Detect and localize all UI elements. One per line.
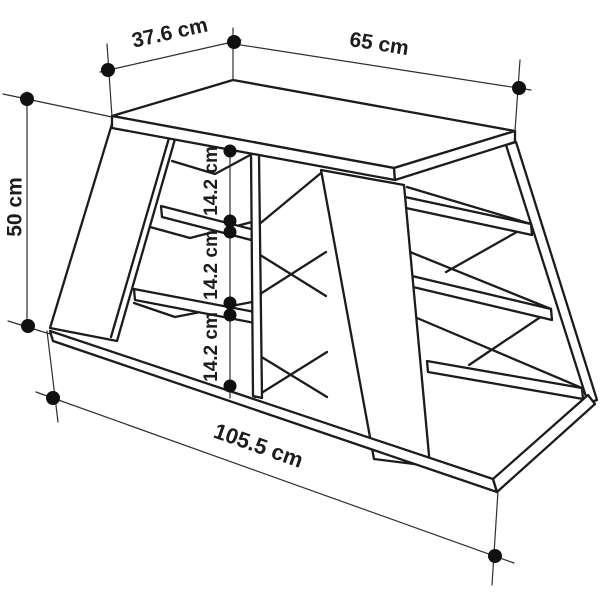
label-bottom-width: 105.5 cm [211,418,307,473]
depth-dimension-line [100,40,241,72]
dimension-diagram: 37.6 cm 65 cm 50 cm 14.2 cm 14.2 cm 14.2… [0,0,600,600]
dimension-endpoint-dot [224,145,237,158]
label-top-depth: 37.6 cm [130,14,210,53]
base-right-face [493,395,595,492]
dimension-endpoint-dot [227,35,241,49]
furniture-drawing-svg: 37.6 cm 65 cm 50 cm 14.2 cm 14.2 cm 14.2… [0,0,600,600]
dimension-endpoint-dot [512,81,526,95]
label-shelf-gap-top: 14.2 cm [201,146,222,216]
center-divider-panel [251,152,262,398]
dimension-endpoint-dot [224,226,237,239]
label-side-height: 50 cm [4,177,27,237]
dimension-endpoint-dot [488,549,502,563]
dimension-endpoint-dot [224,309,237,322]
extension-line [515,60,520,131]
shelf-right-middle [412,276,552,320]
label-shelf-gap-bottom: 14.2 cm [201,312,222,382]
extension-line [107,44,112,117]
front-support-panel [321,170,430,466]
dimension-endpoint-dot [21,319,35,333]
dimension-endpoint-dot [224,380,237,393]
dimension-endpoint-dot [101,63,115,77]
left-panel-face [50,124,175,341]
label-top-width: 65 cm [348,28,410,60]
back-edge-line [257,173,321,226]
extension-line [3,94,112,117]
dimension-endpoint-dot [46,391,60,405]
right-side-panel [506,142,597,403]
base-front-face [50,331,497,492]
dimension-endpoint-dot [20,92,34,106]
extension-line [47,331,58,422]
shelf-right-upper [405,197,532,235]
label-shelf-gap-middle: 14.2 cm [201,230,222,300]
shelf-right-lower [427,361,583,399]
tabletop [112,80,515,180]
dimension-endpoint-dot [224,297,237,310]
extension-line [492,491,498,585]
left-side-panel [50,124,175,341]
